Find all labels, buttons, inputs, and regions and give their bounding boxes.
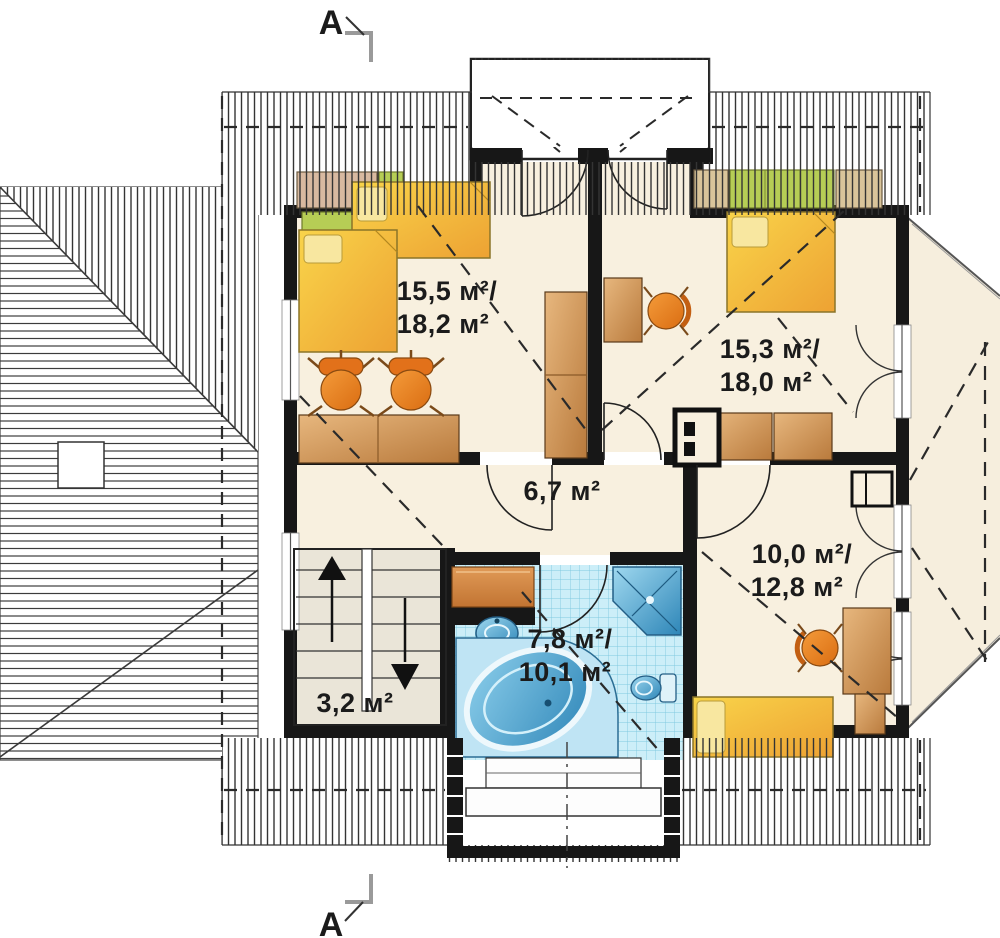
counter [452, 567, 534, 607]
radiator [852, 472, 892, 506]
section-letter-top: A [319, 4, 344, 42]
dormer-bottom-wall [447, 846, 680, 858]
wall-bathroom-top [447, 552, 540, 565]
wall-bathroom-right [683, 452, 697, 738]
floor-plan-drawing: A A 15,5 м²/ 18,2 м² 15,3 м²/ 18,0 м² 6,… [0, 0, 1000, 938]
label-bedroom-left-2: 18,2 м² [397, 309, 490, 339]
round-chair [644, 287, 689, 335]
section-flag-bottom [345, 874, 371, 902]
label-stairs: 3,2 м² [317, 688, 394, 718]
section-letter-bottom: A [319, 906, 344, 938]
dormer-window-sill [466, 788, 661, 816]
toilet [631, 674, 676, 702]
desk-small [604, 278, 642, 342]
dormer-pier [664, 738, 680, 846]
desk [299, 415, 459, 463]
section-flag-top [345, 33, 371, 62]
label-hall: 6,7 м² [524, 476, 601, 506]
left-roof [0, 187, 258, 760]
desk [843, 608, 891, 694]
label-bedroom-right-2: 18,0 м² [720, 367, 813, 397]
label-bedroom-bottom-1: 10,0 м²/ [752, 539, 853, 569]
cabinet [855, 694, 885, 734]
wardrobe-tall [545, 292, 587, 458]
dresser [774, 413, 832, 460]
hall-floor [296, 465, 683, 555]
label-bedroom-bottom-2: 12,8 м² [751, 572, 844, 602]
dormer-interior [472, 60, 708, 147]
chimney [58, 442, 104, 488]
bed-double [727, 212, 835, 312]
bed-vertical [299, 230, 397, 352]
wall-left [284, 205, 297, 738]
shelf-unit [675, 410, 719, 465]
label-bathroom-2: 10,1 м² [519, 657, 612, 687]
label-bedroom-left-1: 15,5 м²/ [397, 276, 498, 306]
wall-bottom-left [284, 725, 447, 738]
section-marker-bottom: A [319, 874, 371, 938]
section-marker-top: A [319, 4, 371, 62]
label-bedroom-right-1: 15,3 м²/ [720, 334, 821, 364]
terrace-right [908, 218, 1000, 728]
stair-rail [362, 549, 372, 711]
label-bathroom-1: 7,8 м²/ [527, 624, 612, 654]
dormer-pier [447, 738, 463, 846]
